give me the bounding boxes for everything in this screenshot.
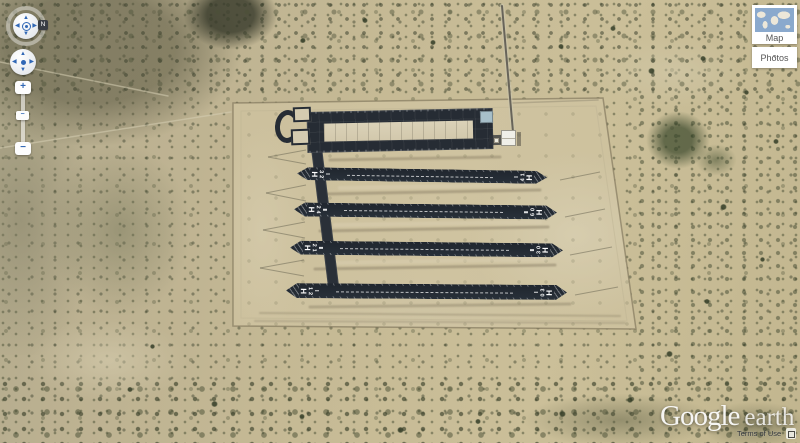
- bush: [300, 38, 306, 43]
- runway-centerline: [344, 210, 503, 213]
- runway-threshold-marking: H 24: [308, 203, 329, 217]
- runway-number: 21: [312, 243, 315, 252]
- helipad-mark: H: [546, 289, 554, 295]
- threshold-tick: [514, 176, 518, 178]
- bush: [299, 414, 305, 419]
- bush: [150, 344, 155, 349]
- concrete-strip: [324, 120, 473, 141]
- helipad-mark: H: [542, 247, 550, 253]
- blue-pad: [480, 111, 493, 123]
- apron: [307, 108, 494, 153]
- chevron-down-icon: ▾: [773, 55, 776, 60]
- threshold-tick: [326, 173, 330, 175]
- helipad-mark: H: [536, 209, 544, 215]
- pan-down-arrow-icon[interactable]: ▼: [20, 67, 26, 73]
- bush: [397, 427, 404, 433]
- trailer-shadow: [517, 132, 521, 146]
- pan-up-arrow-icon[interactable]: ▲: [20, 51, 26, 57]
- runway-threshold-marking: 03 H: [528, 243, 549, 257]
- bush: [127, 387, 133, 392]
- bush: [666, 351, 673, 357]
- access-road: [502, 6, 598, 132]
- small-structure: [494, 138, 499, 143]
- helipad-mark: H: [299, 288, 307, 294]
- helipad-mark: H: [310, 171, 318, 177]
- threshold-tick: [534, 292, 538, 294]
- runway-3: H 21 03 H: [290, 241, 563, 258]
- runway-threshold-marking: H 12: [300, 283, 321, 298]
- threshold-tick: [323, 209, 327, 211]
- zoom-in-button[interactable]: +: [15, 81, 31, 94]
- pan-left-arrow-icon[interactable]: ◀: [12, 59, 17, 65]
- bush: [430, 40, 436, 45]
- earth-logo-text: earth: [744, 404, 794, 431]
- pan-center-dot-icon[interactable]: [21, 60, 26, 65]
- runway-threshold-marking: 30 H: [532, 285, 553, 300]
- attribution-icon[interactable]: [786, 428, 796, 439]
- helipad-mark: H: [526, 174, 534, 180]
- google-logo-text: Google: [660, 400, 739, 432]
- world-map-thumbnail-icon: [755, 8, 794, 32]
- look-down-arrow-icon[interactable]: ▼: [23, 31, 29, 37]
- threshold-tick: [524, 211, 528, 213]
- helipad-mark: H: [303, 245, 311, 251]
- bush: [475, 419, 481, 424]
- desert-trails: [0, 62, 231, 148]
- threshold-tick: [530, 249, 534, 251]
- map-button-label: Map: [752, 33, 797, 43]
- bush: [558, 44, 564, 49]
- look-center-eye-icon[interactable]: [22, 22, 31, 31]
- runway-threshold-marking: H 21: [304, 241, 325, 255]
- photos-button[interactable]: Photos ▾: [752, 47, 797, 68]
- runway-centerline: [347, 174, 493, 177]
- zoom-slider-thumb[interactable]: −: [16, 111, 29, 120]
- helipad-upper: [293, 107, 312, 123]
- look-left-arrow-icon[interactable]: ◀: [15, 23, 20, 29]
- runway-number: 12: [308, 286, 311, 295]
- bush: [744, 90, 749, 95]
- runway-number: 32: [319, 169, 322, 178]
- bush: [773, 139, 779, 144]
- look-joystick[interactable]: ▲ ▼ ◀ ▶: [13, 13, 39, 39]
- google-earth-window: H 32 14 H H 24 06 H H 21: [0, 0, 800, 443]
- bush: [559, 411, 566, 417]
- runway-centerline: [336, 291, 513, 293]
- zoom-out-button[interactable]: −: [15, 142, 31, 155]
- bush: [627, 397, 633, 403]
- pan-right-arrow-icon[interactable]: ▶: [29, 59, 34, 65]
- runway-threshold-marking: 14 H: [512, 170, 533, 183]
- bush: [700, 56, 706, 61]
- runway-threshold-marking: 06 H: [522, 205, 543, 219]
- bush: [704, 299, 710, 304]
- terms-of-use-link[interactable]: Terms of Use: [737, 429, 781, 438]
- overview-map-button[interactable]: Map: [752, 5, 797, 44]
- bush: [760, 257, 765, 262]
- bush: [211, 401, 218, 407]
- runway-centerline: [340, 248, 509, 251]
- runway-number: 24: [316, 205, 319, 214]
- bush: [720, 204, 727, 210]
- helipad-mark: H: [307, 207, 315, 213]
- compass-north-button[interactable]: N: [38, 20, 48, 30]
- threshold-tick: [315, 290, 319, 292]
- terrain-markings-overlay: [0, 0, 800, 443]
- threshold-tick: [319, 247, 323, 249]
- helipad-lower: [291, 129, 311, 146]
- runway-threshold-marking: H 32: [311, 167, 332, 180]
- pan-joystick[interactable]: ▲ ▼ ◀ ▶: [10, 49, 36, 75]
- runway-4: H 12 30 H: [286, 283, 567, 300]
- bush: [648, 68, 655, 74]
- bush: [610, 26, 616, 31]
- trailer-building: [501, 130, 516, 146]
- look-right-arrow-icon[interactable]: ▶: [32, 23, 37, 29]
- bush: [362, 18, 368, 23]
- look-up-arrow-icon[interactable]: ▲: [23, 15, 29, 21]
